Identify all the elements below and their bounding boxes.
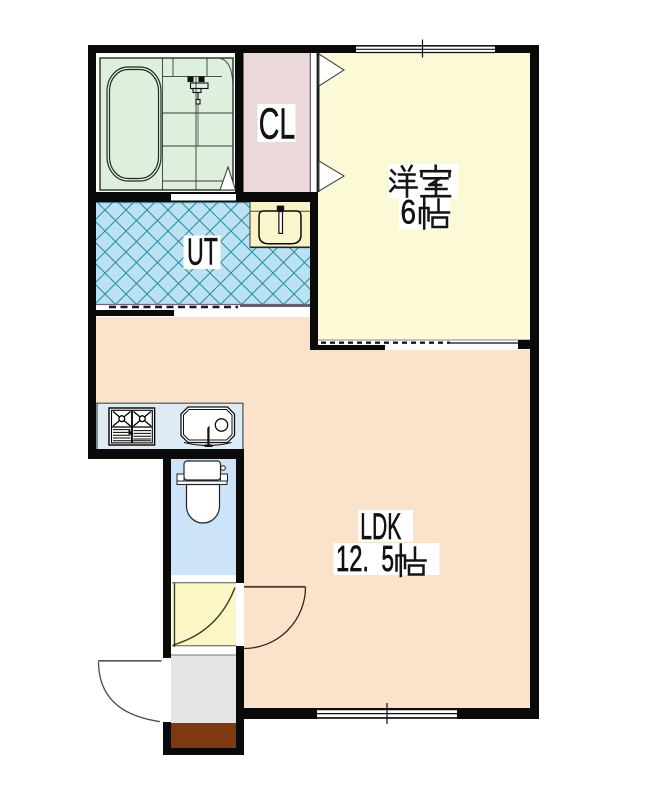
- svg-text:5: 5: [382, 538, 395, 579]
- svg-text:CL: CL: [259, 100, 296, 149]
- svg-text:12.: 12.: [336, 538, 369, 579]
- svg-text:6: 6: [401, 194, 417, 232]
- svg-text:UT: UT: [187, 232, 218, 274]
